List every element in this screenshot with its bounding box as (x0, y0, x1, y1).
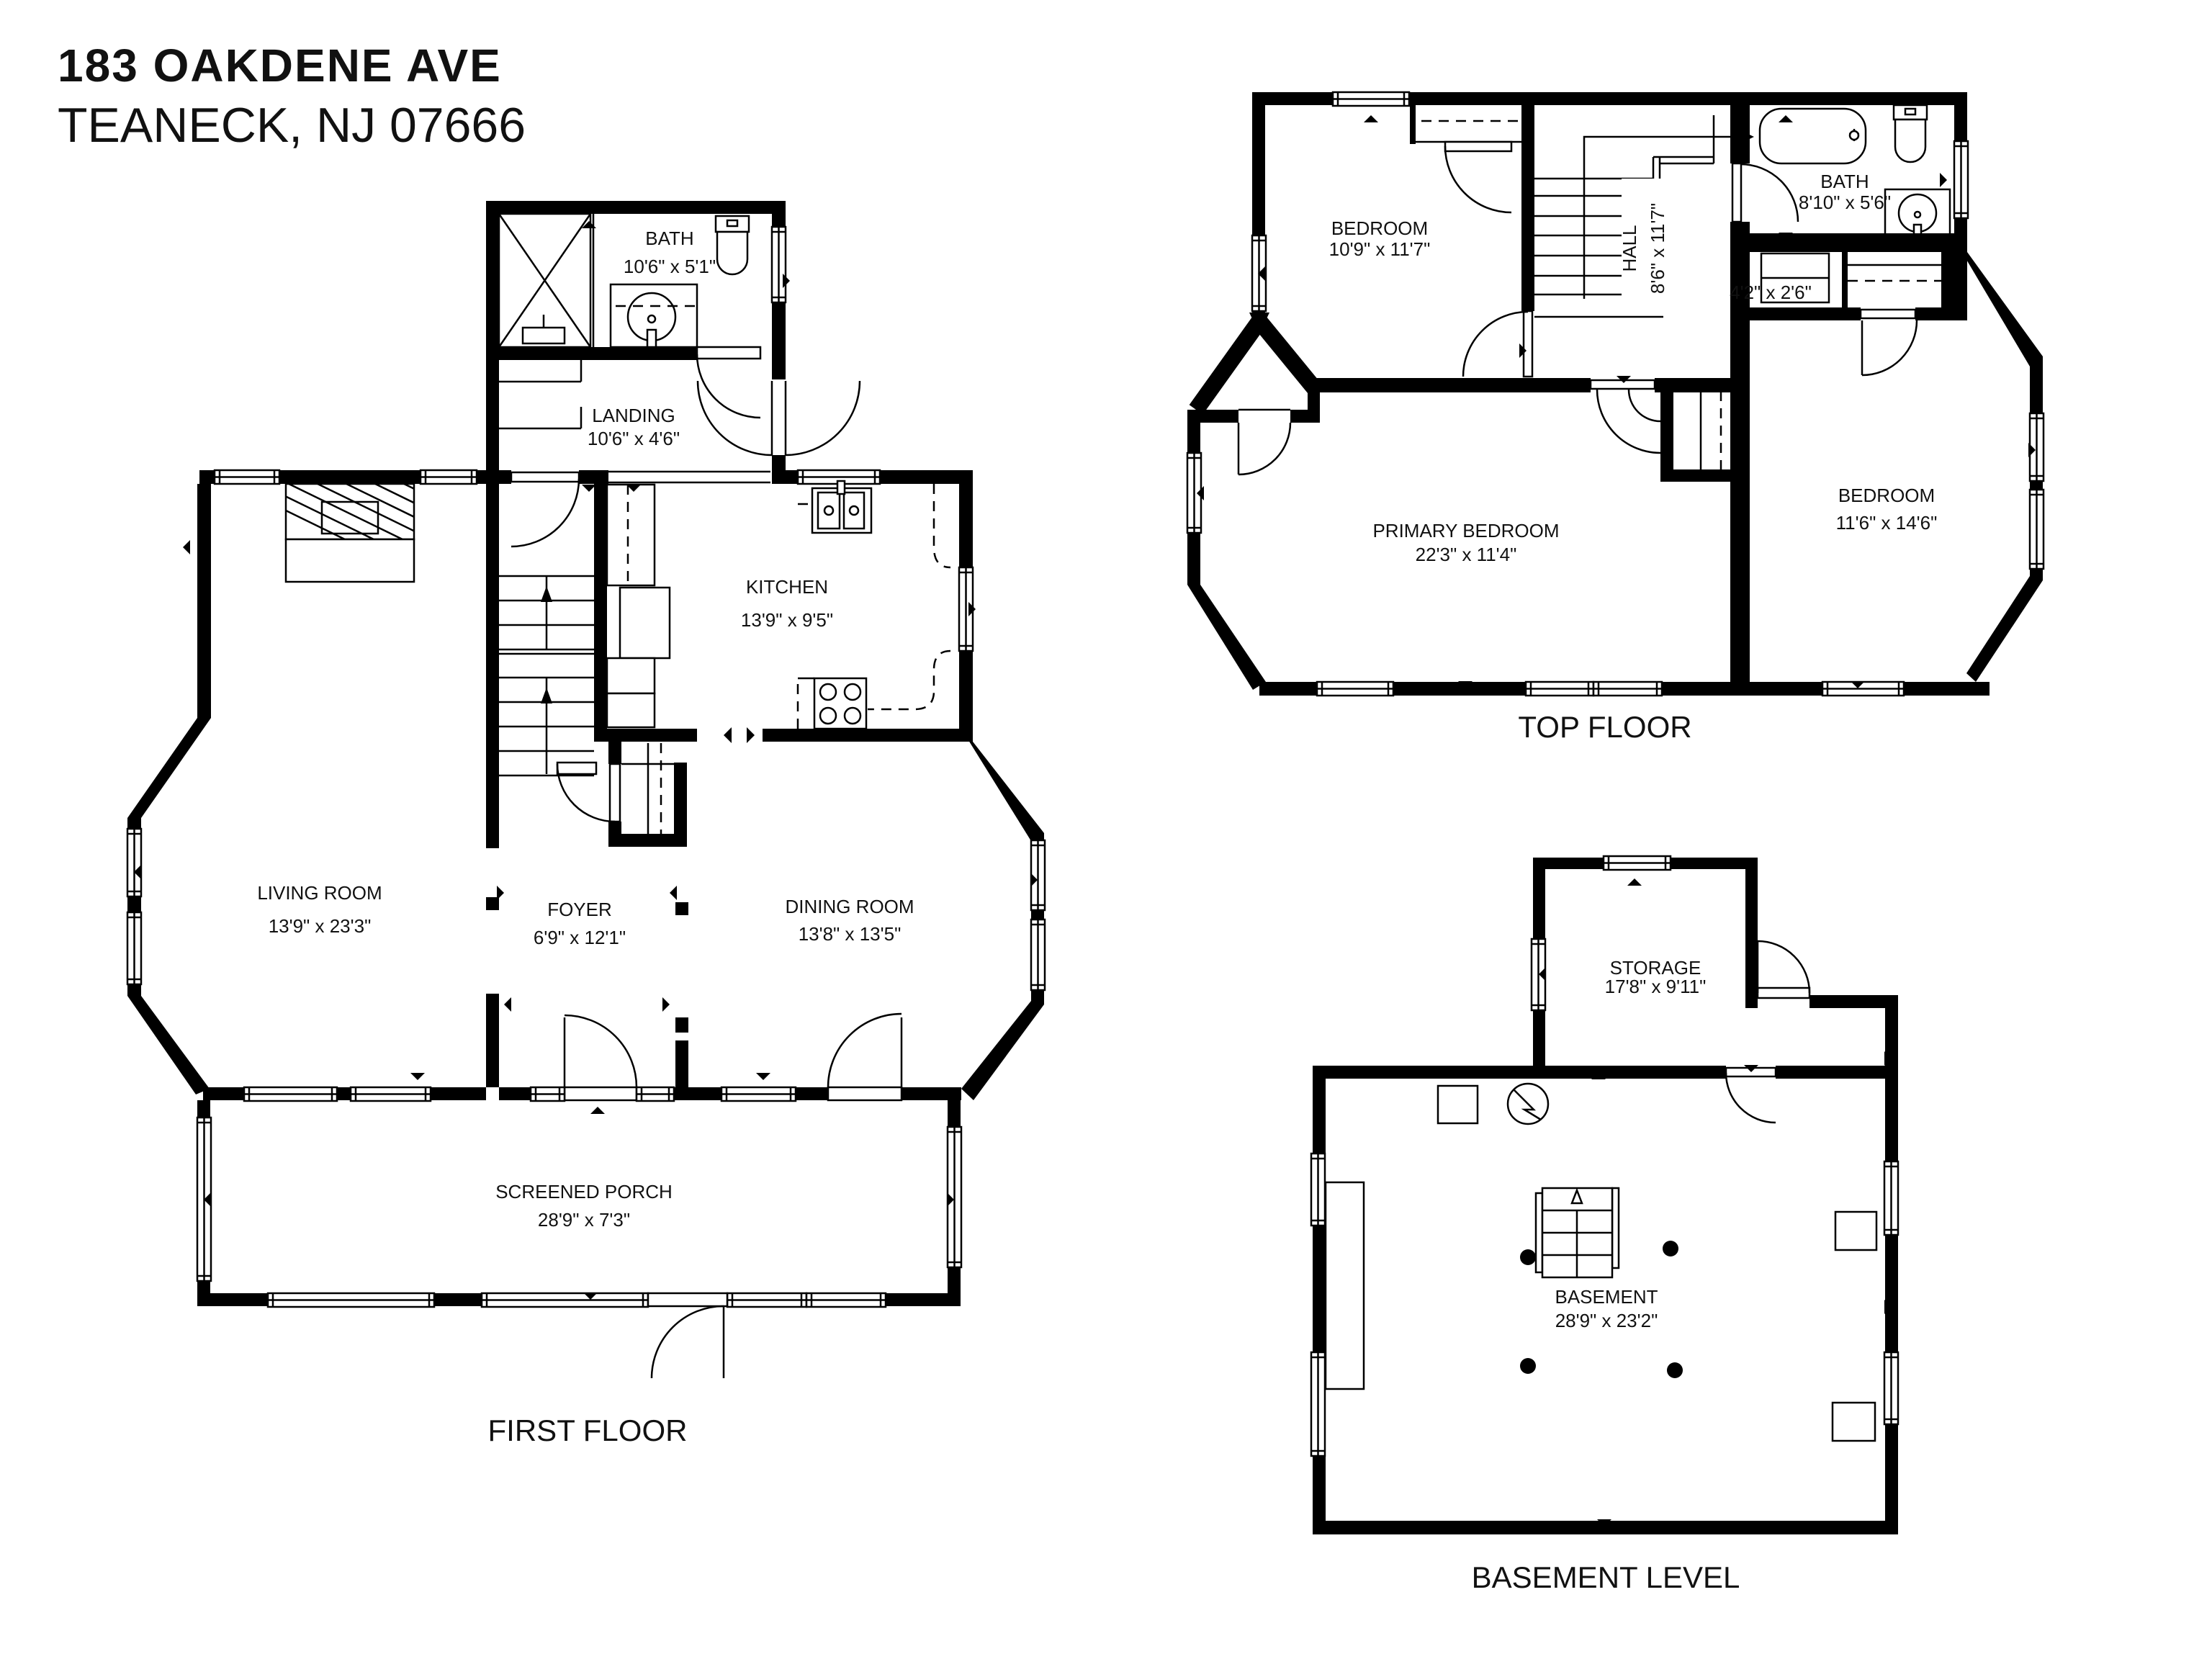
svg-text:BEDROOM: BEDROOM (1331, 217, 1428, 239)
svg-text:BASEMENT: BASEMENT (1555, 1286, 1658, 1308)
svg-text:KITCHEN: KITCHEN (746, 576, 828, 598)
svg-text:8'6" x 11'7": 8'6" x 11'7" (1647, 203, 1668, 294)
svg-text:BATH: BATH (645, 228, 693, 249)
svg-text:TOP FLOOR: TOP FLOOR (1518, 710, 1691, 744)
svg-text:FOYER: FOYER (547, 899, 612, 920)
svg-text:28'9" x 7'3": 28'9" x 7'3" (538, 1209, 630, 1231)
svg-text:10'6" x 5'1": 10'6" x 5'1" (624, 256, 716, 277)
svg-text:SCREENED PORCH: SCREENED PORCH (495, 1181, 673, 1202)
svg-text:6'9" x 12'1": 6'9" x 12'1" (534, 927, 626, 948)
svg-text:8'10" x 5'6": 8'10" x 5'6" (1799, 192, 1891, 213)
svg-text:183 OAKDENE AVE: 183 OAKDENE AVE (58, 40, 502, 91)
svg-text:22'3" x 11'4": 22'3" x 11'4" (1416, 544, 1517, 565)
svg-text:28'9" x 23'2": 28'9" x 23'2" (1555, 1310, 1658, 1331)
svg-text:TEANECK, NJ 07666: TEANECK, NJ 07666 (58, 98, 526, 153)
svg-text:10'9" x 11'7": 10'9" x 11'7" (1329, 238, 1431, 260)
svg-text:11'6" x 14'6": 11'6" x 14'6" (1836, 512, 1938, 534)
svg-text:BASEMENT LEVEL: BASEMENT LEVEL (1472, 1560, 1740, 1594)
svg-text:BATH: BATH (1820, 171, 1869, 192)
svg-text:HALL: HALL (1619, 225, 1640, 271)
svg-text:LIVING ROOM: LIVING ROOM (257, 882, 382, 904)
svg-text:BEDROOM: BEDROOM (1838, 485, 1935, 506)
svg-text:17'8" x 9'11": 17'8" x 9'11" (1605, 976, 1707, 997)
svg-text:13'8" x 13'5": 13'8" x 13'5" (799, 923, 902, 945)
svg-text:PRIMARY BEDROOM: PRIMARY BEDROOM (1372, 520, 1559, 541)
svg-text:10'6" x 4'6": 10'6" x 4'6" (588, 428, 680, 449)
svg-text:LANDING: LANDING (592, 405, 675, 426)
svg-text:FIRST FLOOR: FIRST FLOOR (488, 1413, 688, 1447)
svg-text:13'9" x 23'3": 13'9" x 23'3" (269, 915, 372, 937)
svg-text:DINING ROOM: DINING ROOM (785, 896, 914, 917)
svg-text:4'2" x 2'6": 4'2" x 2'6" (1730, 282, 1812, 303)
svg-text:13'9" x 9'5": 13'9" x 9'5" (741, 609, 833, 631)
